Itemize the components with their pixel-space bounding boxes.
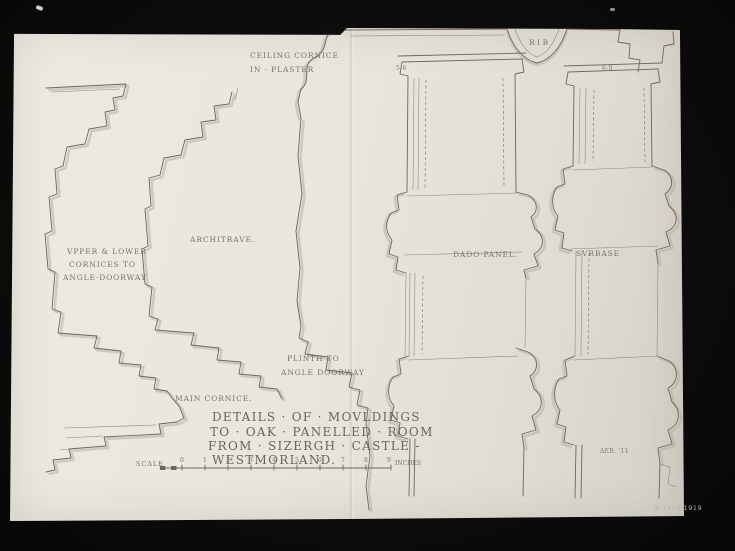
scale-number-6: 6	[318, 458, 322, 464]
dust-speck	[36, 5, 44, 11]
scale-number-0: 0	[180, 458, 184, 464]
drawing-sheet: CEILING CORNICE IN · PLASTER RIB 5-6 6-9…	[10, 26, 684, 522]
ceiling-cornice-profile	[296, 29, 640, 120]
doorway-cornices-label-line3: ANGLE·DOORWAY	[63, 274, 147, 282]
scale-number-8: 8	[364, 458, 368, 464]
scale-number-9: 9	[387, 458, 391, 464]
scale-unit-label: INCHES	[395, 461, 421, 467]
surbase-section	[551, 32, 681, 498]
dimension-left: 5-6	[396, 66, 407, 72]
scale-number-1: 1	[203, 458, 207, 464]
scale-number-3: 3	[249, 458, 253, 464]
main-cornice-label: MAIN CORNICE.	[175, 395, 252, 403]
accession-number: E.1316-1919	[655, 504, 702, 512]
ceiling-cornice-label-line2: IN · PLASTER	[250, 66, 314, 74]
plinth-label-line1: PLINTH TO	[287, 355, 340, 363]
rib-label: RIB	[529, 39, 551, 47]
scale-number-2: 2	[226, 458, 230, 464]
dust-speck	[610, 8, 615, 11]
artist-signature: AEB. '11	[600, 449, 629, 455]
doorway-cornices-label-line1: VPPER & LOWER	[67, 248, 147, 256]
scale-number-7: 7	[341, 458, 345, 464]
plinth-label-line2: ANGLE DOORWAY	[281, 369, 365, 377]
doorway-cornices-label-line2: CORNICES TO	[69, 261, 136, 269]
scale-label: SCALE	[136, 461, 164, 468]
scale-number-5: 5	[295, 458, 299, 464]
ceiling-cornice-label-line1: CEILING CORNICE	[250, 52, 339, 60]
scale-number-4: 4	[272, 458, 276, 464]
dado-panel-label: DADO·PANEL.	[453, 251, 518, 259]
surbase-label: SVRBASE	[576, 250, 620, 258]
title-line3: FROM · SIZERGH · CASTLE -	[208, 440, 421, 452]
architrave-profile	[142, 88, 285, 401]
museum-photograph: { "photo": { "background_color": "#0c0c0…	[0, 0, 735, 551]
dimension-right: 6-9	[602, 66, 613, 72]
title-line1: DETAILS · OF · MOVLDINGS	[212, 411, 421, 423]
architrave-label: ARCHITRAVE.	[190, 236, 255, 244]
title-line2: TO · OAK · PANELLED · ROOM	[210, 426, 434, 438]
